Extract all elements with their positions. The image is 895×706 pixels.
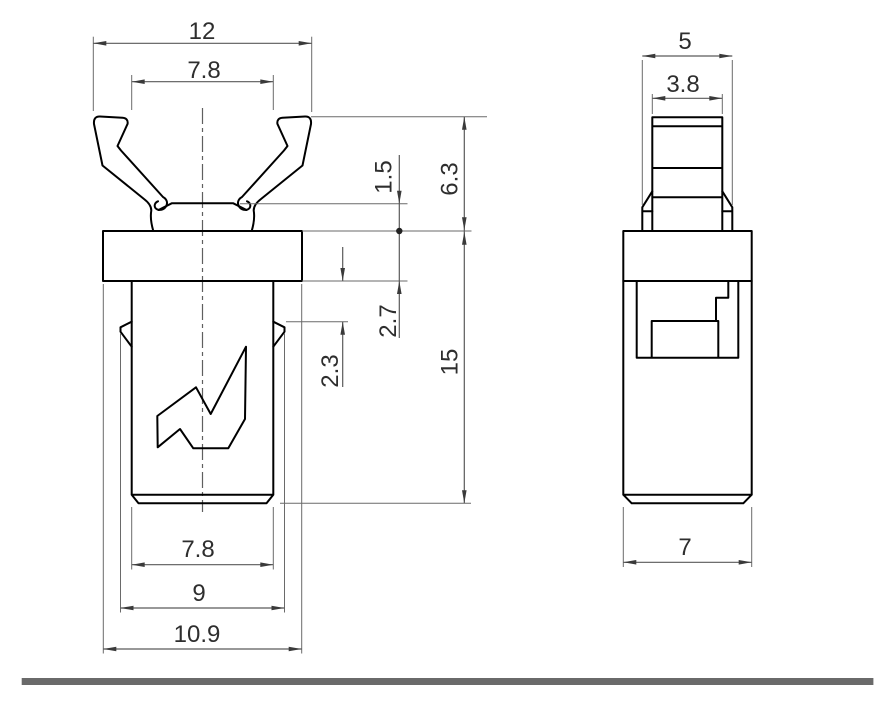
reference-dot [396, 228, 402, 234]
dim-side-tab-width: 3.8 [666, 71, 699, 98]
dim-front-flange-thickness: 2.7 [375, 304, 402, 337]
dim-front-barb-offset: 2.3 [317, 354, 344, 387]
side-body [623, 281, 751, 503]
side-tab [652, 117, 722, 231]
side-flange [623, 231, 751, 281]
front-barb-left [121, 322, 132, 347]
dim-front-overall-width: 12 [189, 18, 216, 45]
front-barb-right [273, 322, 284, 347]
dimension-labels: 12 7.8 1.5 6.3 2.7 2.3 15 7.8 9 10.9 5 3… [174, 18, 700, 648]
dim-side-body-depth: 7 [678, 534, 691, 561]
front-spring-cutout [157, 347, 246, 449]
front-crown-left-arm [94, 116, 167, 231]
dim-front-body-length: 15 [437, 349, 464, 376]
dim-front-barb-span: 9 [192, 580, 205, 607]
dim-front-flange-width: 10.9 [174, 621, 221, 648]
front-crown-right-arm [238, 116, 311, 231]
dim-front-body-width: 7.8 [181, 536, 214, 563]
technical-drawing-canvas: 12 7.8 1.5 6.3 2.7 2.3 15 7.8 9 10.9 5 3… [0, 0, 895, 706]
dim-front-crown-tip-width: 7.8 [187, 57, 220, 84]
dim-front-crown-height: 6.3 [437, 162, 464, 195]
dim-front-crown-seat-drop: 1.5 [371, 160, 398, 193]
side-internal-detail [637, 281, 739, 358]
drawing-page: 12 7.8 1.5 6.3 2.7 2.3 15 7.8 9 10.9 5 3… [0, 0, 895, 706]
front-view [94, 108, 311, 512]
bottom-border-bar [22, 678, 874, 685]
dim-side-head-width: 5 [678, 28, 691, 55]
